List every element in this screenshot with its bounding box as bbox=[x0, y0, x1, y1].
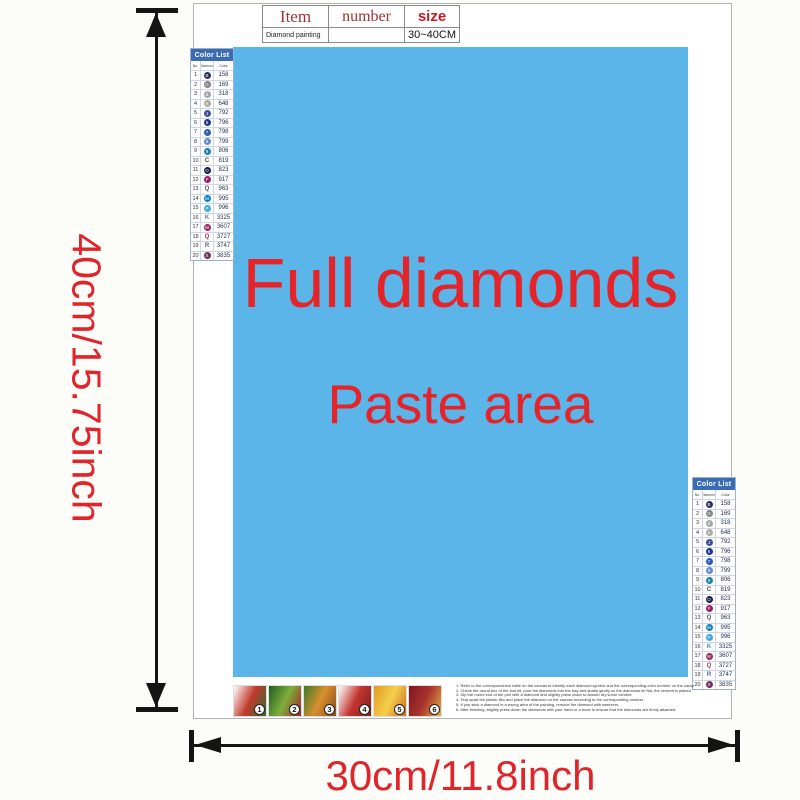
diamond-symbol-icon: B bbox=[204, 72, 211, 79]
row-number: 6 bbox=[693, 548, 703, 557]
diamond-symbol-icon: F bbox=[204, 176, 211, 183]
dmc-color-code: 796 bbox=[214, 119, 233, 128]
symbol-cell: P bbox=[201, 204, 214, 213]
symbol-cell: Q bbox=[703, 662, 716, 671]
dmc-color-code: 819 bbox=[716, 586, 735, 595]
diamond-symbol-letter: K bbox=[707, 644, 711, 650]
dmc-color-code: 169 bbox=[214, 81, 233, 90]
paste-area-line2: Paste area bbox=[233, 372, 688, 436]
vertical-arrow-bottom-cap bbox=[136, 707, 178, 712]
row-number: 12 bbox=[693, 605, 703, 614]
step-number-badge: 4 bbox=[359, 704, 370, 715]
color-list-row: 14M995 bbox=[191, 194, 233, 204]
diamond-symbol-icon: 7 bbox=[706, 558, 713, 565]
symbol-cell: R bbox=[201, 242, 214, 251]
color-list-row: 20X3835 bbox=[191, 251, 233, 261]
color-list-row: 4e648 bbox=[191, 99, 233, 109]
step-thumbnail: 6 bbox=[408, 685, 442, 717]
diamond-symbol-icon: W bbox=[706, 653, 713, 660]
dmc-color-code: 917 bbox=[716, 605, 735, 614]
diamond-symbol-icon: 6 bbox=[204, 119, 211, 126]
diamond-symbol-icon: B bbox=[706, 501, 713, 508]
diamond-symbol-icon: O bbox=[204, 167, 211, 174]
dmc-color-code: 158 bbox=[214, 71, 233, 80]
color-list-row: 18Q3727 bbox=[191, 232, 233, 242]
color-list-row: 11O823 bbox=[693, 594, 735, 604]
symbol-cell: W bbox=[201, 223, 214, 232]
color-list-col-no: No. bbox=[693, 490, 703, 499]
number-value-cell bbox=[328, 27, 404, 42]
symbol-cell: G bbox=[201, 81, 214, 90]
dmc-color-code: 648 bbox=[716, 529, 735, 538]
row-number: 11 bbox=[693, 595, 703, 604]
dmc-color-code: 792 bbox=[214, 109, 233, 118]
step-number-badge: 3 bbox=[324, 704, 335, 715]
symbol-cell: J bbox=[201, 109, 214, 118]
color-list-row: 19R3747 bbox=[693, 670, 735, 680]
horizontal-arrow-right-cap bbox=[735, 730, 740, 762]
dmc-color-code: 799 bbox=[214, 138, 233, 147]
diamond-symbol-icon: M bbox=[706, 624, 713, 631]
color-list-row: 10C819 bbox=[693, 585, 735, 595]
diamond-symbol-icon: X bbox=[204, 252, 211, 259]
step-thumbnails-row: 123456 bbox=[233, 685, 442, 717]
color-list-row: 2G169 bbox=[693, 509, 735, 519]
diamond-symbol-icon: G bbox=[204, 81, 211, 88]
dmc-color-code: 3607 bbox=[716, 652, 735, 661]
dmc-color-code: 792 bbox=[716, 538, 735, 547]
symbol-cell: d bbox=[201, 90, 214, 99]
row-number: 1 bbox=[191, 71, 201, 80]
step-number-badge: 2 bbox=[289, 704, 300, 715]
item-value-cell: Diamond painting bbox=[263, 27, 328, 42]
row-number: 1 bbox=[693, 500, 703, 509]
symbol-cell: 9 bbox=[703, 576, 716, 585]
symbol-cell: d bbox=[703, 519, 716, 528]
diamond-symbol-icon: 7 bbox=[204, 129, 211, 136]
color-list-row: 18Q3727 bbox=[693, 661, 735, 671]
step-number-badge: 5 bbox=[394, 704, 405, 715]
instructions-text: 1. Refer to the correspondence table on … bbox=[456, 684, 694, 712]
row-number: 11 bbox=[191, 166, 201, 175]
arrowhead-left-icon bbox=[195, 737, 221, 753]
dmc-color-code: 996 bbox=[214, 204, 233, 213]
color-list-row: 1B158 bbox=[693, 499, 735, 509]
color-list-row: 77798 bbox=[191, 127, 233, 137]
paste-area-canvas: Full diamonds Paste area bbox=[233, 47, 688, 677]
symbol-cell: Q bbox=[201, 233, 214, 242]
arrowhead-down-icon bbox=[146, 683, 166, 707]
dmc-color-code: 3747 bbox=[214, 242, 233, 251]
diamond-painting-size-guide: 40cm/15.75inch Item number size Diamond … bbox=[0, 0, 800, 800]
step-thumbnail: 4 bbox=[338, 685, 372, 717]
vertical-arrow-shaft bbox=[155, 13, 158, 707]
width-dimension-label: 30cm/11.8inch bbox=[233, 752, 688, 800]
row-number: 16 bbox=[693, 643, 703, 652]
dmc-color-code: 963 bbox=[716, 614, 735, 623]
row-number: 2 bbox=[693, 510, 703, 519]
color-list-row: 4e648 bbox=[693, 528, 735, 538]
diamond-symbol-icon: J bbox=[204, 110, 211, 117]
row-number: 15 bbox=[191, 204, 201, 213]
symbol-cell: e bbox=[201, 100, 214, 109]
symbol-cell: 6 bbox=[201, 119, 214, 128]
dmc-color-code: 963 bbox=[214, 185, 233, 194]
diamond-symbol-icon: 8 bbox=[204, 138, 211, 145]
diamond-symbol-letter: C bbox=[205, 158, 209, 164]
dmc-color-code: 806 bbox=[214, 147, 233, 156]
color-list-row: 10C819 bbox=[191, 156, 233, 166]
symbol-cell: 7 bbox=[201, 128, 214, 137]
color-list-row: 3d318 bbox=[191, 89, 233, 99]
color-list-rows: 1B1582G1693d3184e6485J792667967779888799… bbox=[693, 499, 735, 689]
row-number: 18 bbox=[191, 233, 201, 242]
symbol-cell: J bbox=[703, 538, 716, 547]
step-number-badge: 6 bbox=[429, 704, 440, 715]
diamond-symbol-icon: e bbox=[706, 529, 713, 536]
symbol-cell: O bbox=[201, 166, 214, 175]
color-list-row: 66796 bbox=[191, 118, 233, 128]
color-list-title: Color List bbox=[191, 49, 233, 61]
arrowhead-up-icon bbox=[146, 13, 166, 37]
dmc-color-code: 158 bbox=[716, 500, 735, 509]
diamond-symbol-icon: P bbox=[706, 634, 713, 641]
row-number: 17 bbox=[693, 652, 703, 661]
row-number: 7 bbox=[191, 128, 201, 137]
color-list-row: 13Q963 bbox=[191, 184, 233, 194]
diamond-symbol-letter: Q bbox=[205, 234, 210, 240]
row-number: 12 bbox=[191, 176, 201, 185]
dmc-color-code: 796 bbox=[716, 548, 735, 557]
row-number: 10 bbox=[693, 586, 703, 595]
row-number: 13 bbox=[191, 185, 201, 194]
row-number: 8 bbox=[693, 567, 703, 576]
symbol-cell: B bbox=[201, 71, 214, 80]
dmc-color-code: 3835 bbox=[214, 252, 233, 261]
color-list-col-color: Color bbox=[716, 490, 735, 499]
symbol-cell: X bbox=[703, 681, 716, 690]
color-list-row: 19R3747 bbox=[191, 241, 233, 251]
item-header-cell: Item bbox=[263, 6, 328, 27]
paste-area-line1: Full diamonds bbox=[233, 243, 688, 323]
row-number: 17 bbox=[191, 223, 201, 232]
row-number: 3 bbox=[191, 90, 201, 99]
color-list-row: 16K3325 bbox=[693, 642, 735, 652]
color-list-row: 17W3607 bbox=[693, 651, 735, 661]
diamond-symbol-icon: F bbox=[706, 605, 713, 612]
arrowhead-right-icon bbox=[708, 737, 734, 753]
color-list-header: No. Diamond Color bbox=[693, 490, 735, 499]
dmc-color-code: 819 bbox=[214, 157, 233, 166]
instruction-line: 6. After finishing, slightly press down … bbox=[456, 708, 694, 713]
symbol-cell: R bbox=[703, 671, 716, 680]
row-number: 3 bbox=[693, 519, 703, 528]
diamond-symbol-icon: W bbox=[204, 224, 211, 231]
height-dimension-label: 40cm/15.75inch bbox=[63, 233, 110, 522]
symbol-cell: W bbox=[703, 652, 716, 661]
symbol-cell: F bbox=[703, 605, 716, 614]
symbol-cell: C bbox=[703, 586, 716, 595]
row-number: 6 bbox=[191, 119, 201, 128]
row-number: 14 bbox=[693, 624, 703, 633]
color-list-row: 99806 bbox=[693, 575, 735, 585]
color-list-row: 15P996 bbox=[693, 632, 735, 642]
symbol-cell: M bbox=[703, 624, 716, 633]
dmc-color-code: 995 bbox=[716, 624, 735, 633]
dmc-color-code: 823 bbox=[716, 595, 735, 604]
diamond-symbol-letter: R bbox=[205, 243, 209, 249]
symbol-cell: 7 bbox=[703, 557, 716, 566]
dmc-color-code: 798 bbox=[716, 557, 735, 566]
color-list-header: No. Diamond Color bbox=[191, 61, 233, 70]
dmc-color-code: 917 bbox=[214, 176, 233, 185]
symbol-cell: X bbox=[201, 252, 214, 261]
step-thumbnail: 1 bbox=[233, 685, 267, 717]
size-value-cell: 30~40CM bbox=[404, 27, 459, 42]
color-list-row: 88799 bbox=[693, 566, 735, 576]
row-number: 4 bbox=[191, 100, 201, 109]
color-list-row: 11O823 bbox=[191, 165, 233, 175]
dmc-color-code: 995 bbox=[214, 195, 233, 204]
color-list-row: 88799 bbox=[191, 137, 233, 147]
color-list-row: 66796 bbox=[693, 547, 735, 557]
dmc-color-code: 3835 bbox=[716, 681, 735, 690]
row-number: 19 bbox=[191, 242, 201, 251]
diamond-symbol-icon: 6 bbox=[706, 548, 713, 555]
row-number: 5 bbox=[191, 109, 201, 118]
row-number: 9 bbox=[693, 576, 703, 585]
color-list-right: Color List No. Diamond Color 1B1582G1693… bbox=[692, 477, 736, 690]
step-thumbnail: 5 bbox=[373, 685, 407, 717]
diamond-symbol-icon: 8 bbox=[706, 567, 713, 574]
color-list-row: 5J792 bbox=[191, 108, 233, 118]
color-list-col-color: Color bbox=[214, 61, 233, 70]
step-thumbnail: 2 bbox=[268, 685, 302, 717]
color-list-left: Color List No. Diamond Color 1B1582G1693… bbox=[190, 48, 234, 261]
row-number: 4 bbox=[693, 529, 703, 538]
row-number: 9 bbox=[191, 147, 201, 156]
dmc-color-code: 3747 bbox=[716, 671, 735, 680]
diamond-symbol-letter: Q bbox=[707, 663, 712, 669]
diamond-symbol-letter: Q bbox=[205, 186, 210, 192]
color-list-row: 20X3835 bbox=[693, 680, 735, 690]
dmc-color-code: 3727 bbox=[214, 233, 233, 242]
symbol-cell: 9 bbox=[201, 147, 214, 156]
diamond-symbol-letter: K bbox=[205, 215, 209, 221]
diamond-symbol-icon: 9 bbox=[204, 148, 211, 155]
color-list-row: 99806 bbox=[191, 146, 233, 156]
row-number: 7 bbox=[693, 557, 703, 566]
symbol-cell: 8 bbox=[703, 567, 716, 576]
symbol-cell: 6 bbox=[703, 548, 716, 557]
color-list-row: 13Q963 bbox=[693, 613, 735, 623]
color-list-row: 14M995 bbox=[693, 623, 735, 633]
diamond-symbol-icon: O bbox=[706, 596, 713, 603]
row-number: 16 bbox=[191, 214, 201, 223]
row-number: 2 bbox=[191, 81, 201, 90]
dmc-color-code: 648 bbox=[214, 100, 233, 109]
diamond-symbol-icon: d bbox=[706, 520, 713, 527]
color-list-row: 2G169 bbox=[191, 80, 233, 90]
diamond-symbol-icon: 9 bbox=[706, 577, 713, 584]
color-list-row: 12F917 bbox=[191, 175, 233, 185]
diamond-symbol-icon: d bbox=[204, 91, 211, 98]
row-number: 15 bbox=[693, 633, 703, 642]
symbol-cell: Q bbox=[201, 185, 214, 194]
color-list-row: 16K3325 bbox=[191, 213, 233, 223]
color-list-col-no: No. bbox=[191, 61, 201, 70]
dmc-color-code: 996 bbox=[716, 633, 735, 642]
row-number: 5 bbox=[693, 538, 703, 547]
symbol-cell: B bbox=[703, 500, 716, 509]
color-list-row: 77798 bbox=[693, 556, 735, 566]
diamond-symbol-icon: e bbox=[204, 100, 211, 107]
dmc-color-code: 3607 bbox=[214, 223, 233, 232]
diamond-symbol-icon: X bbox=[706, 681, 713, 688]
diamond-symbol-letter: Q bbox=[707, 615, 712, 621]
dmc-color-code: 3727 bbox=[716, 662, 735, 671]
color-list-row: 5J792 bbox=[693, 537, 735, 547]
row-number: 8 bbox=[191, 138, 201, 147]
dmc-color-code: 3325 bbox=[214, 214, 233, 223]
horizontal-arrow-shaft bbox=[194, 744, 735, 747]
color-list-title: Color List bbox=[693, 478, 735, 490]
diamond-symbol-icon: G bbox=[706, 510, 713, 517]
row-number: 20 bbox=[191, 252, 201, 261]
symbol-cell: F bbox=[201, 176, 214, 185]
symbol-cell: e bbox=[703, 529, 716, 538]
symbol-cell: Q bbox=[703, 614, 716, 623]
dmc-color-code: 318 bbox=[716, 519, 735, 528]
size-header-cell: size bbox=[404, 6, 459, 27]
row-number: 19 bbox=[693, 671, 703, 680]
symbol-cell: K bbox=[703, 643, 716, 652]
symbol-cell: P bbox=[703, 633, 716, 642]
color-list-row: 1B158 bbox=[191, 70, 233, 80]
step-thumbnail: 3 bbox=[303, 685, 337, 717]
diamond-symbol-letter: C bbox=[707, 587, 711, 593]
diamond-symbol-icon: P bbox=[204, 205, 211, 212]
color-list-col-diamond: Diamond bbox=[703, 490, 716, 499]
dmc-color-code: 823 bbox=[214, 166, 233, 175]
row-number: 10 bbox=[191, 157, 201, 166]
diamond-symbol-icon: M bbox=[204, 195, 211, 202]
color-list-row: 12F917 bbox=[693, 604, 735, 614]
color-list-rows: 1B1582G1693d3184e6485J792667967779888799… bbox=[191, 70, 233, 260]
color-list-row: 3d318 bbox=[693, 518, 735, 528]
row-number: 18 bbox=[693, 662, 703, 671]
symbol-cell: M bbox=[201, 195, 214, 204]
step-number-badge: 1 bbox=[254, 704, 265, 715]
number-header-cell: number bbox=[328, 6, 404, 27]
color-list-row: 17W3607 bbox=[191, 222, 233, 232]
symbol-cell: O bbox=[703, 595, 716, 604]
dmc-color-code: 169 bbox=[716, 510, 735, 519]
dmc-color-code: 799 bbox=[716, 567, 735, 576]
color-list-col-diamond: Diamond bbox=[201, 61, 214, 70]
symbol-cell: 8 bbox=[201, 138, 214, 147]
dmc-color-code: 3325 bbox=[716, 643, 735, 652]
item-info-table: Item number size Diamond painting 30~40C… bbox=[262, 5, 460, 43]
symbol-cell: K bbox=[201, 214, 214, 223]
diamond-symbol-icon: J bbox=[706, 539, 713, 546]
row-number: 14 bbox=[191, 195, 201, 204]
symbol-cell: C bbox=[201, 157, 214, 166]
row-number: 20 bbox=[693, 681, 703, 690]
diamond-symbol-letter: R bbox=[707, 672, 711, 678]
dmc-color-code: 318 bbox=[214, 90, 233, 99]
color-list-row: 15P996 bbox=[191, 203, 233, 213]
dmc-color-code: 806 bbox=[716, 576, 735, 585]
row-number: 13 bbox=[693, 614, 703, 623]
symbol-cell: G bbox=[703, 510, 716, 519]
dmc-color-code: 798 bbox=[214, 128, 233, 137]
